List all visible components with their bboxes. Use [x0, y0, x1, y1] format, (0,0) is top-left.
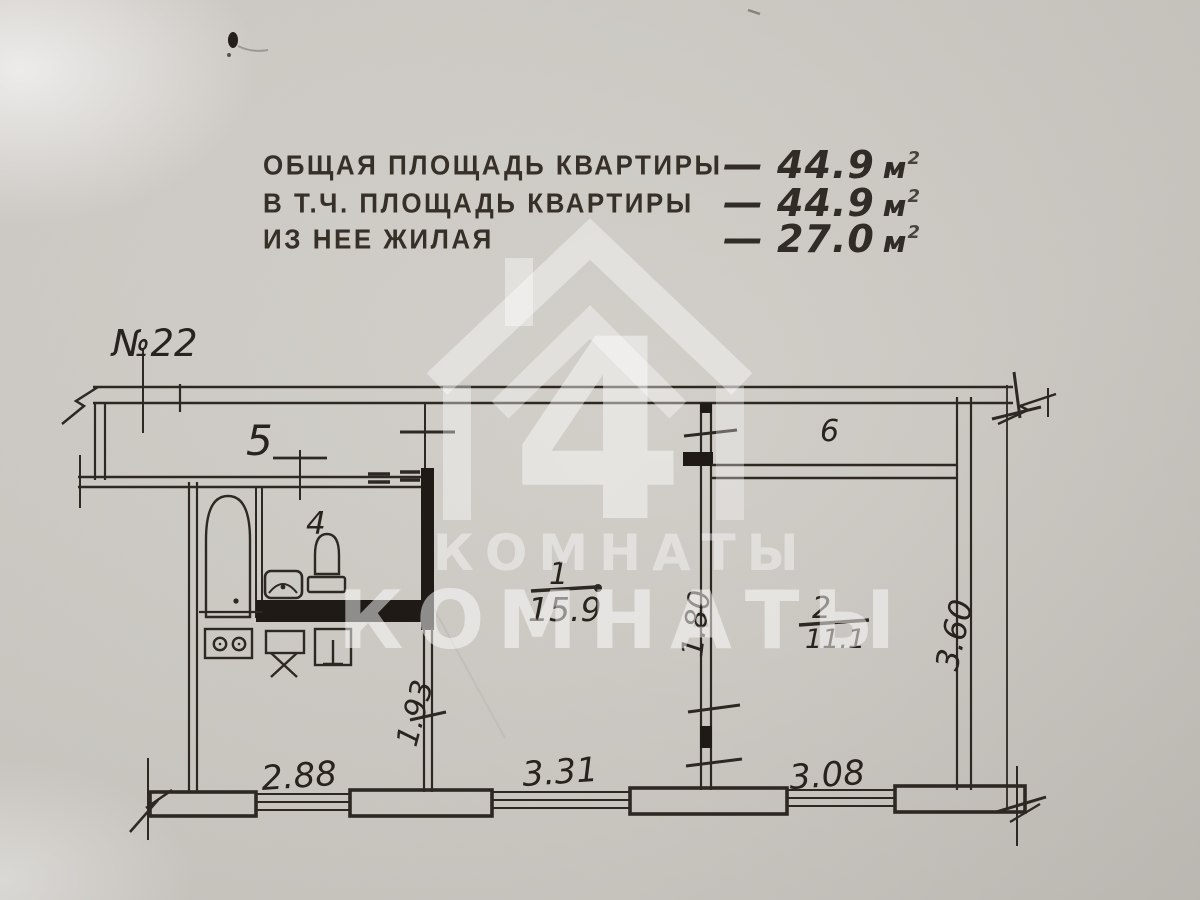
- watermark: 4 КОМНАТЫ КОМНАТЫ: [338, 239, 908, 667]
- apartment-number-label: №22: [110, 322, 198, 365]
- dim-room1-width: 3.31: [521, 750, 599, 795]
- watermark-text-large: КОМНАТЫ: [338, 574, 908, 667]
- room-label-bathroom: 4: [306, 506, 326, 542]
- floorplan-photo: ОБЩАЯ ПЛОЩАДЬ КВАРТИРЫ —44.9м2 В Т.Ч. ПЛ…: [0, 0, 1200, 900]
- bathtub-drain: [233, 598, 238, 603]
- room-label-corridor: 5: [246, 416, 273, 465]
- floorplan-drawing: №22 5 4 6 1 15.9 2 11.1 2.88 3.31 3.08 1…: [0, 0, 1200, 900]
- kitchen-stove: [205, 629, 252, 658]
- dim-room2-depth: 3.60: [928, 596, 981, 674]
- room-label-balcony: 6: [820, 414, 839, 449]
- kitchen-table: [266, 631, 304, 677]
- dim-room2-width: 3.08: [788, 753, 866, 798]
- dim-kitchen-depth: 1.93: [390, 676, 441, 750]
- washbasin: [265, 571, 302, 598]
- bathtub: [206, 496, 250, 617]
- dim-kitchen-width: 2.88: [260, 754, 338, 799]
- right-dimension-line: [992, 385, 1041, 808]
